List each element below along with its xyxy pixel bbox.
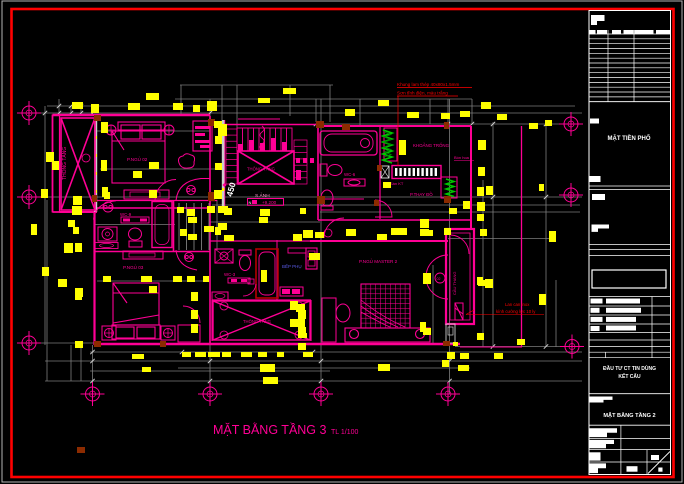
svg-text:MẶT TIỀN PHỐ: MẶT TIỀN PHỐ (608, 135, 651, 142)
svg-text:KẾT CẤU: KẾT CẤU (618, 373, 641, 380)
svg-text:N: N (249, 200, 252, 205)
svg-text:BẾP PHỤ: BẾP PHỤ (282, 263, 302, 269)
svg-text:Sàn KT: Sàn KT (390, 181, 404, 186)
svg-text:S.ẢNH: S.ẢNH (255, 192, 270, 199)
svg-text:P.THAY ĐỒ: P.THAY ĐỒ (410, 192, 433, 197)
svg-text:MẶT BẰNG TẦNG 2: MẶT BẰNG TẦNG 2 (603, 411, 655, 419)
svg-text:CẦU THANG: CẦU THANG (452, 272, 457, 295)
svg-text:THÔNG TẦNG: THÔNG TẦNG (243, 319, 271, 324)
svg-text:WC-6: WC-6 (344, 172, 356, 177)
svg-text:Lan can inox: Lan can inox (505, 302, 530, 307)
svg-text:+9.200: +9.200 (262, 200, 277, 205)
svg-text:KHOẢNG TRỐNG: KHOẢNG TRỐNG (413, 143, 450, 148)
svg-text:ĐẦU TƯ CT TIN DÙNG: ĐẦU TƯ CT TIN DÙNG (603, 365, 656, 372)
svg-text:WC-3: WC-3 (224, 272, 236, 277)
svg-text:TL 1/100: TL 1/100 (331, 429, 358, 436)
svg-text:THÔNG TẦNG: THÔNG TẦNG (61, 147, 68, 180)
svg-text:Khung lam thép 40x80x1.5mm: Khung lam thép 40x80x1.5mm (397, 82, 459, 87)
svg-text:THÔNG TẦNG: THÔNG TẦNG (247, 167, 275, 172)
svg-text:MẶT BẰNG TẦNG 3: MẶT BẰNG TẦNG 3 (213, 422, 327, 437)
svg-text:Sơn tĩnh điện, màu trắng: Sơn tĩnh điện, màu trắng (397, 90, 448, 96)
svg-text:P.NGỦ 02: P.NGỦ 02 (127, 156, 148, 162)
svg-text:P.NGỦ MASTER 2: P.NGỦ MASTER 2 (359, 258, 398, 264)
svg-text:02: 02 (437, 277, 441, 281)
svg-text:P.NGỦ 03: P.NGỦ 03 (123, 264, 144, 270)
svg-text:Bồn hoa: Bồn hoa (454, 155, 470, 160)
svg-text:kính cường lực 10 ly: kính cường lực 10 ly (496, 309, 536, 314)
svg-text:WC-9: WC-9 (120, 212, 132, 217)
